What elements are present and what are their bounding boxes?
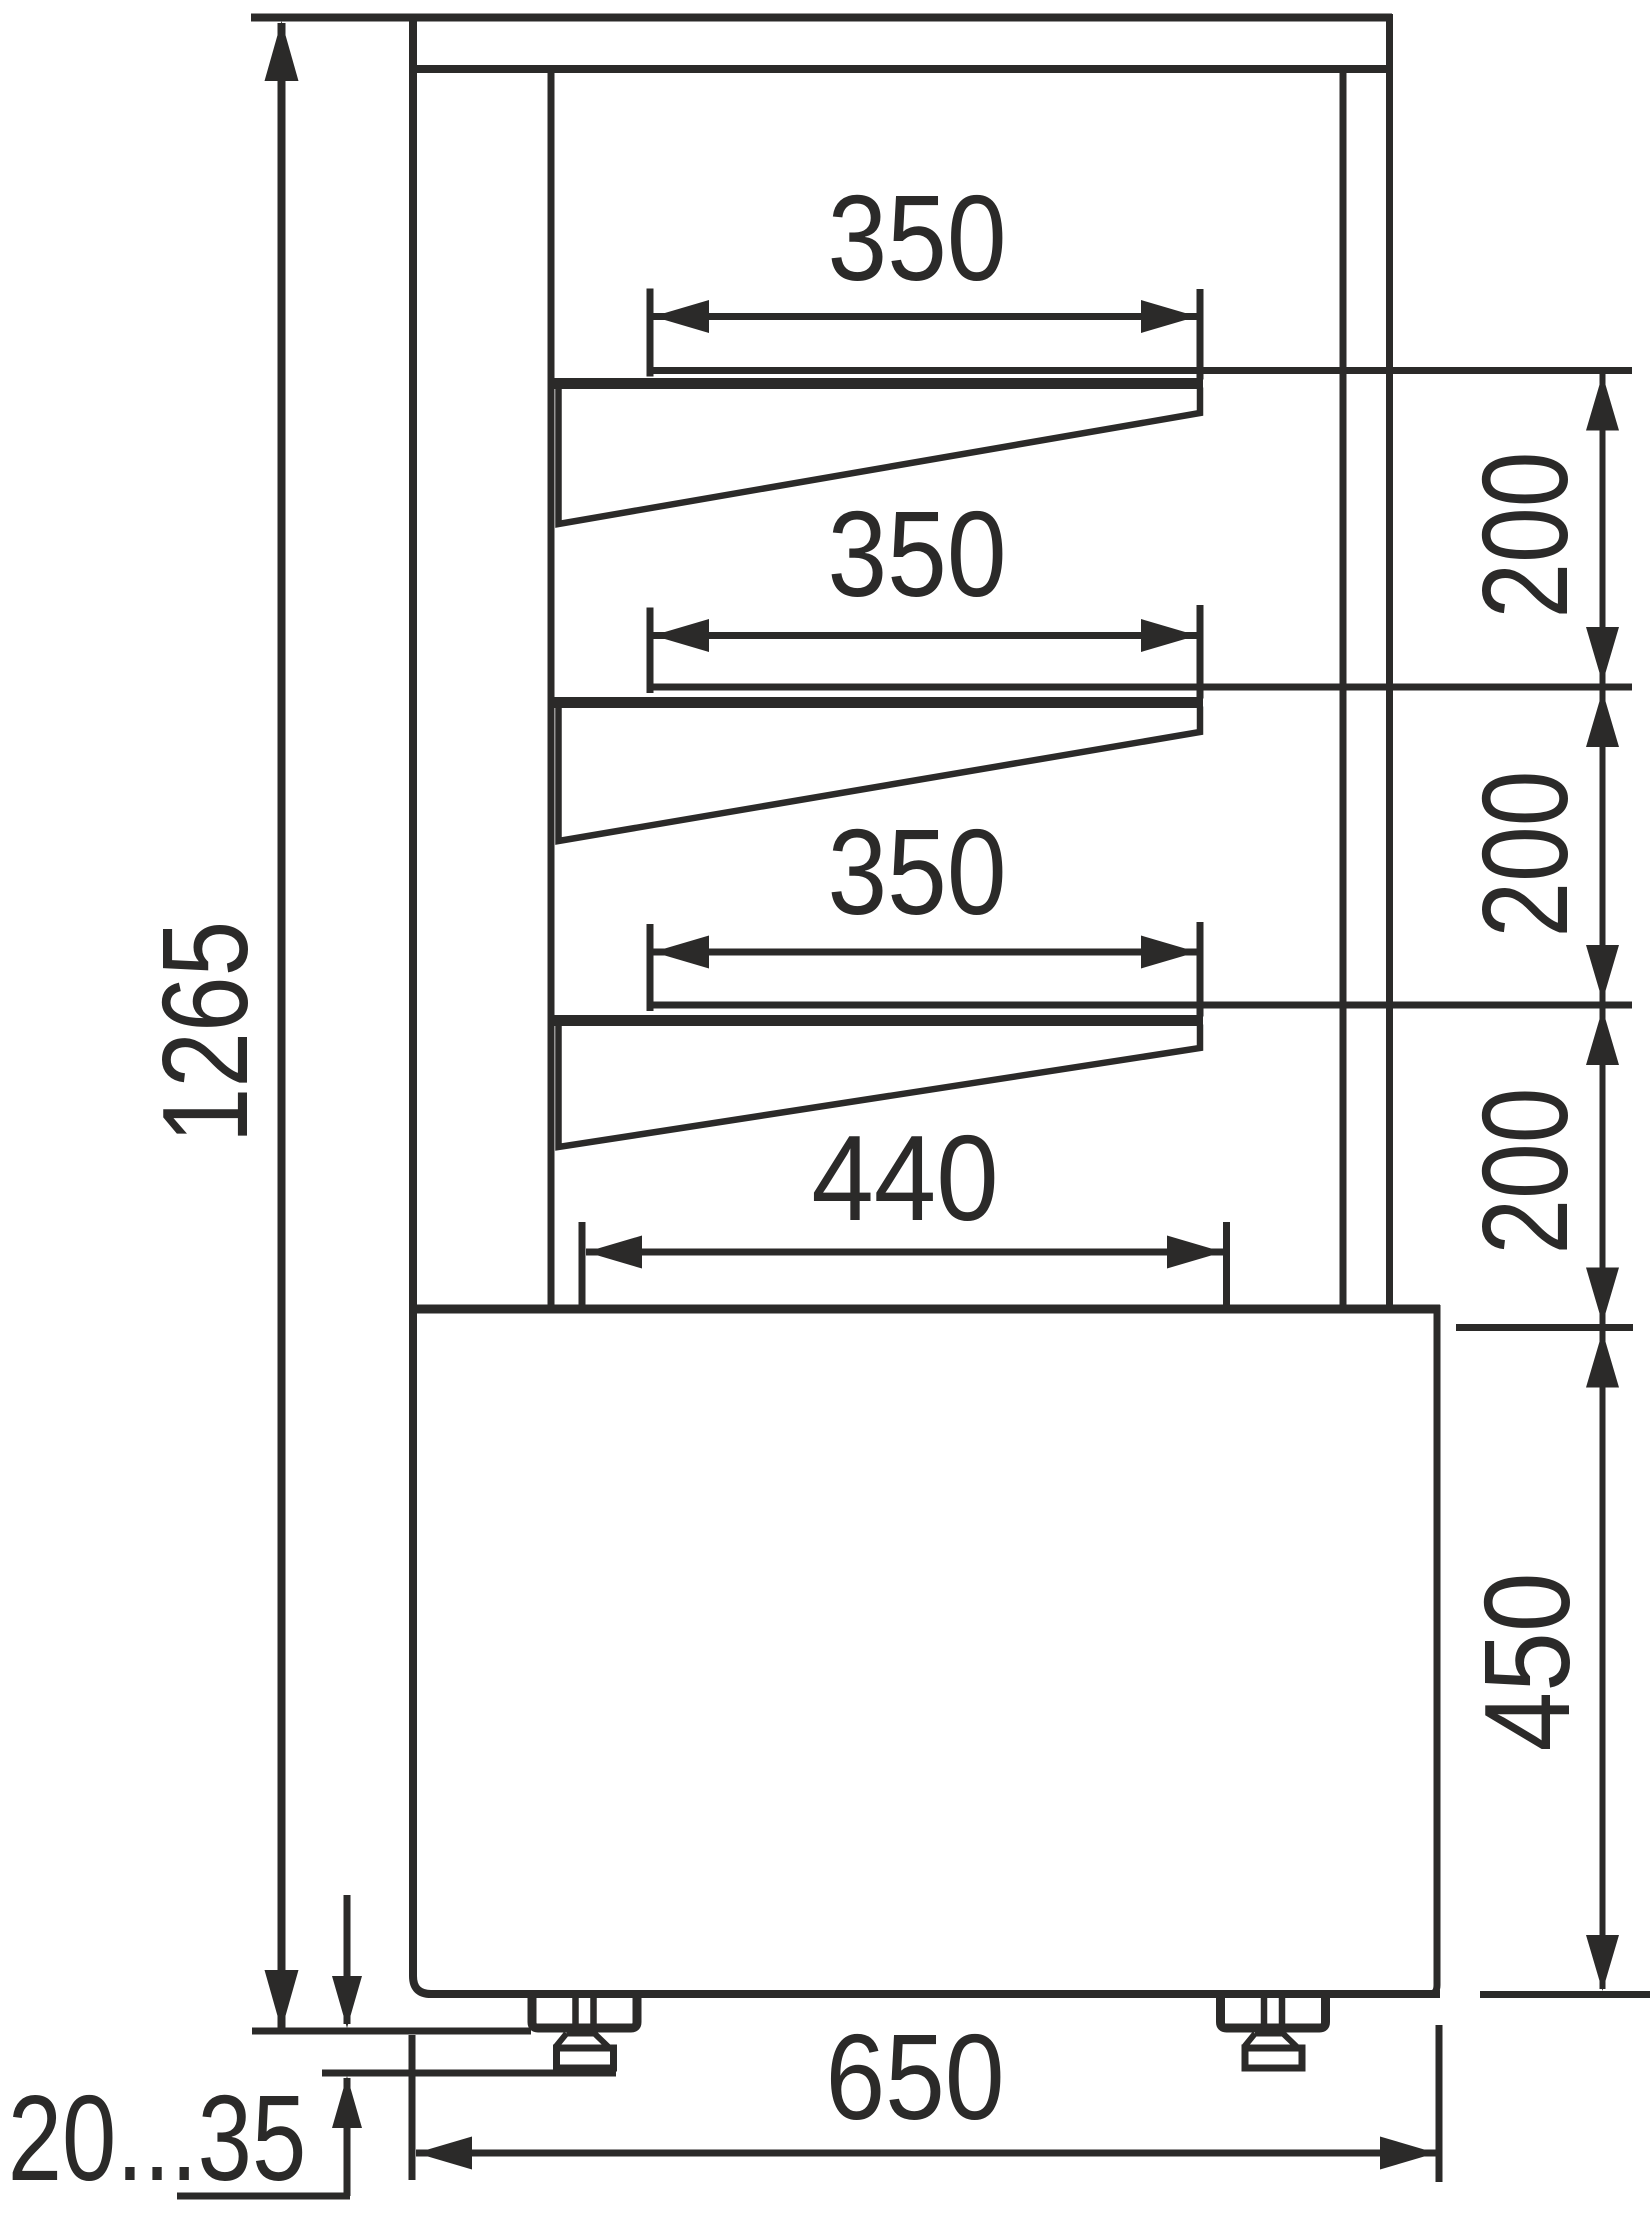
svg-text:350: 350 (827, 487, 1006, 623)
svg-text:350: 350 (827, 171, 1006, 307)
svg-text:200: 200 (1457, 771, 1594, 938)
svg-text:450: 450 (1460, 1572, 1596, 1751)
svg-text:200: 200 (1457, 1088, 1594, 1255)
svg-text:200: 200 (1457, 452, 1594, 619)
svg-text:650: 650 (825, 2010, 1004, 2146)
svg-text:20...35: 20...35 (8, 2071, 306, 2207)
svg-text:440: 440 (811, 1110, 998, 1246)
svg-text:1265: 1265 (137, 921, 274, 1144)
svg-text:350: 350 (827, 805, 1006, 941)
